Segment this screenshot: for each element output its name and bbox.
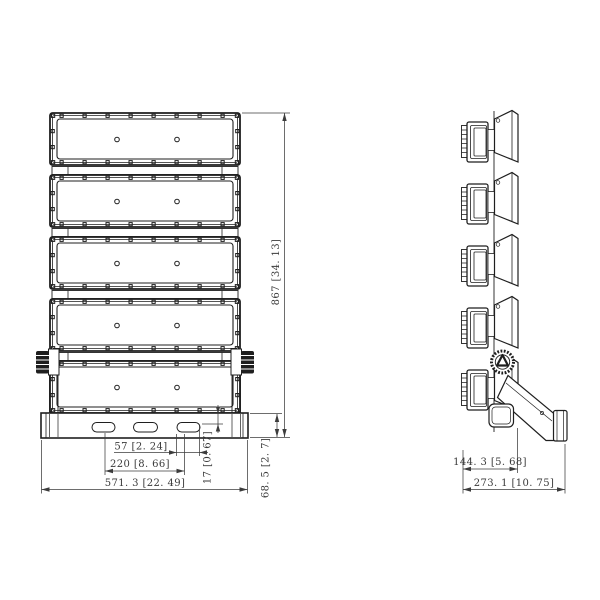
front-module-3 xyxy=(50,237,240,289)
right-adjustment-knob xyxy=(231,349,254,375)
arm-end-cap xyxy=(554,411,568,442)
dim-overall-width: 571. 3 [22. 49] xyxy=(105,478,186,489)
dim-bracket-height: 68. 5 [2. 7] xyxy=(261,438,272,498)
side-module-4 xyxy=(462,297,519,349)
front-module-4 xyxy=(50,299,240,351)
drawing-canvas: 867 [34. 13] 68. 5 [2. 7] 17 [0. 67] 57 … xyxy=(0,0,600,600)
side-module-3 xyxy=(462,235,519,287)
side-module-2 xyxy=(462,173,519,225)
front-module-2 xyxy=(50,175,240,227)
front-module-1 xyxy=(50,113,240,165)
dim-slot-length: 57 [2. 24] xyxy=(114,442,167,453)
front-view xyxy=(36,113,254,438)
side-module-1 xyxy=(462,111,519,163)
aiming-knob xyxy=(492,351,514,373)
dim-slot-spacing: 220 [8. 66] xyxy=(110,459,170,470)
mounting-base-bracket xyxy=(41,413,248,438)
front-module-5 xyxy=(50,361,240,413)
left-adjustment-knob xyxy=(36,349,59,375)
dim-overall-depth: 273. 1 [10. 75] xyxy=(474,478,555,489)
connector-bar xyxy=(52,291,238,299)
dim-slot-vertical-offset: 17 [0. 67] xyxy=(203,431,214,484)
connector-bar xyxy=(52,167,238,175)
dim-overall-height: 867 [34. 13] xyxy=(271,239,282,306)
yoke-pivot-bracket xyxy=(489,404,514,427)
side-view xyxy=(462,111,568,442)
connector-bar xyxy=(52,353,238,361)
dim-body-depth: 144. 3 [5. 68] xyxy=(453,457,527,468)
luminaire-dimension-drawing: 867 [34. 13] 68. 5 [2. 7] 17 [0. 67] 57 … xyxy=(0,0,600,600)
connector-bar xyxy=(52,229,238,237)
